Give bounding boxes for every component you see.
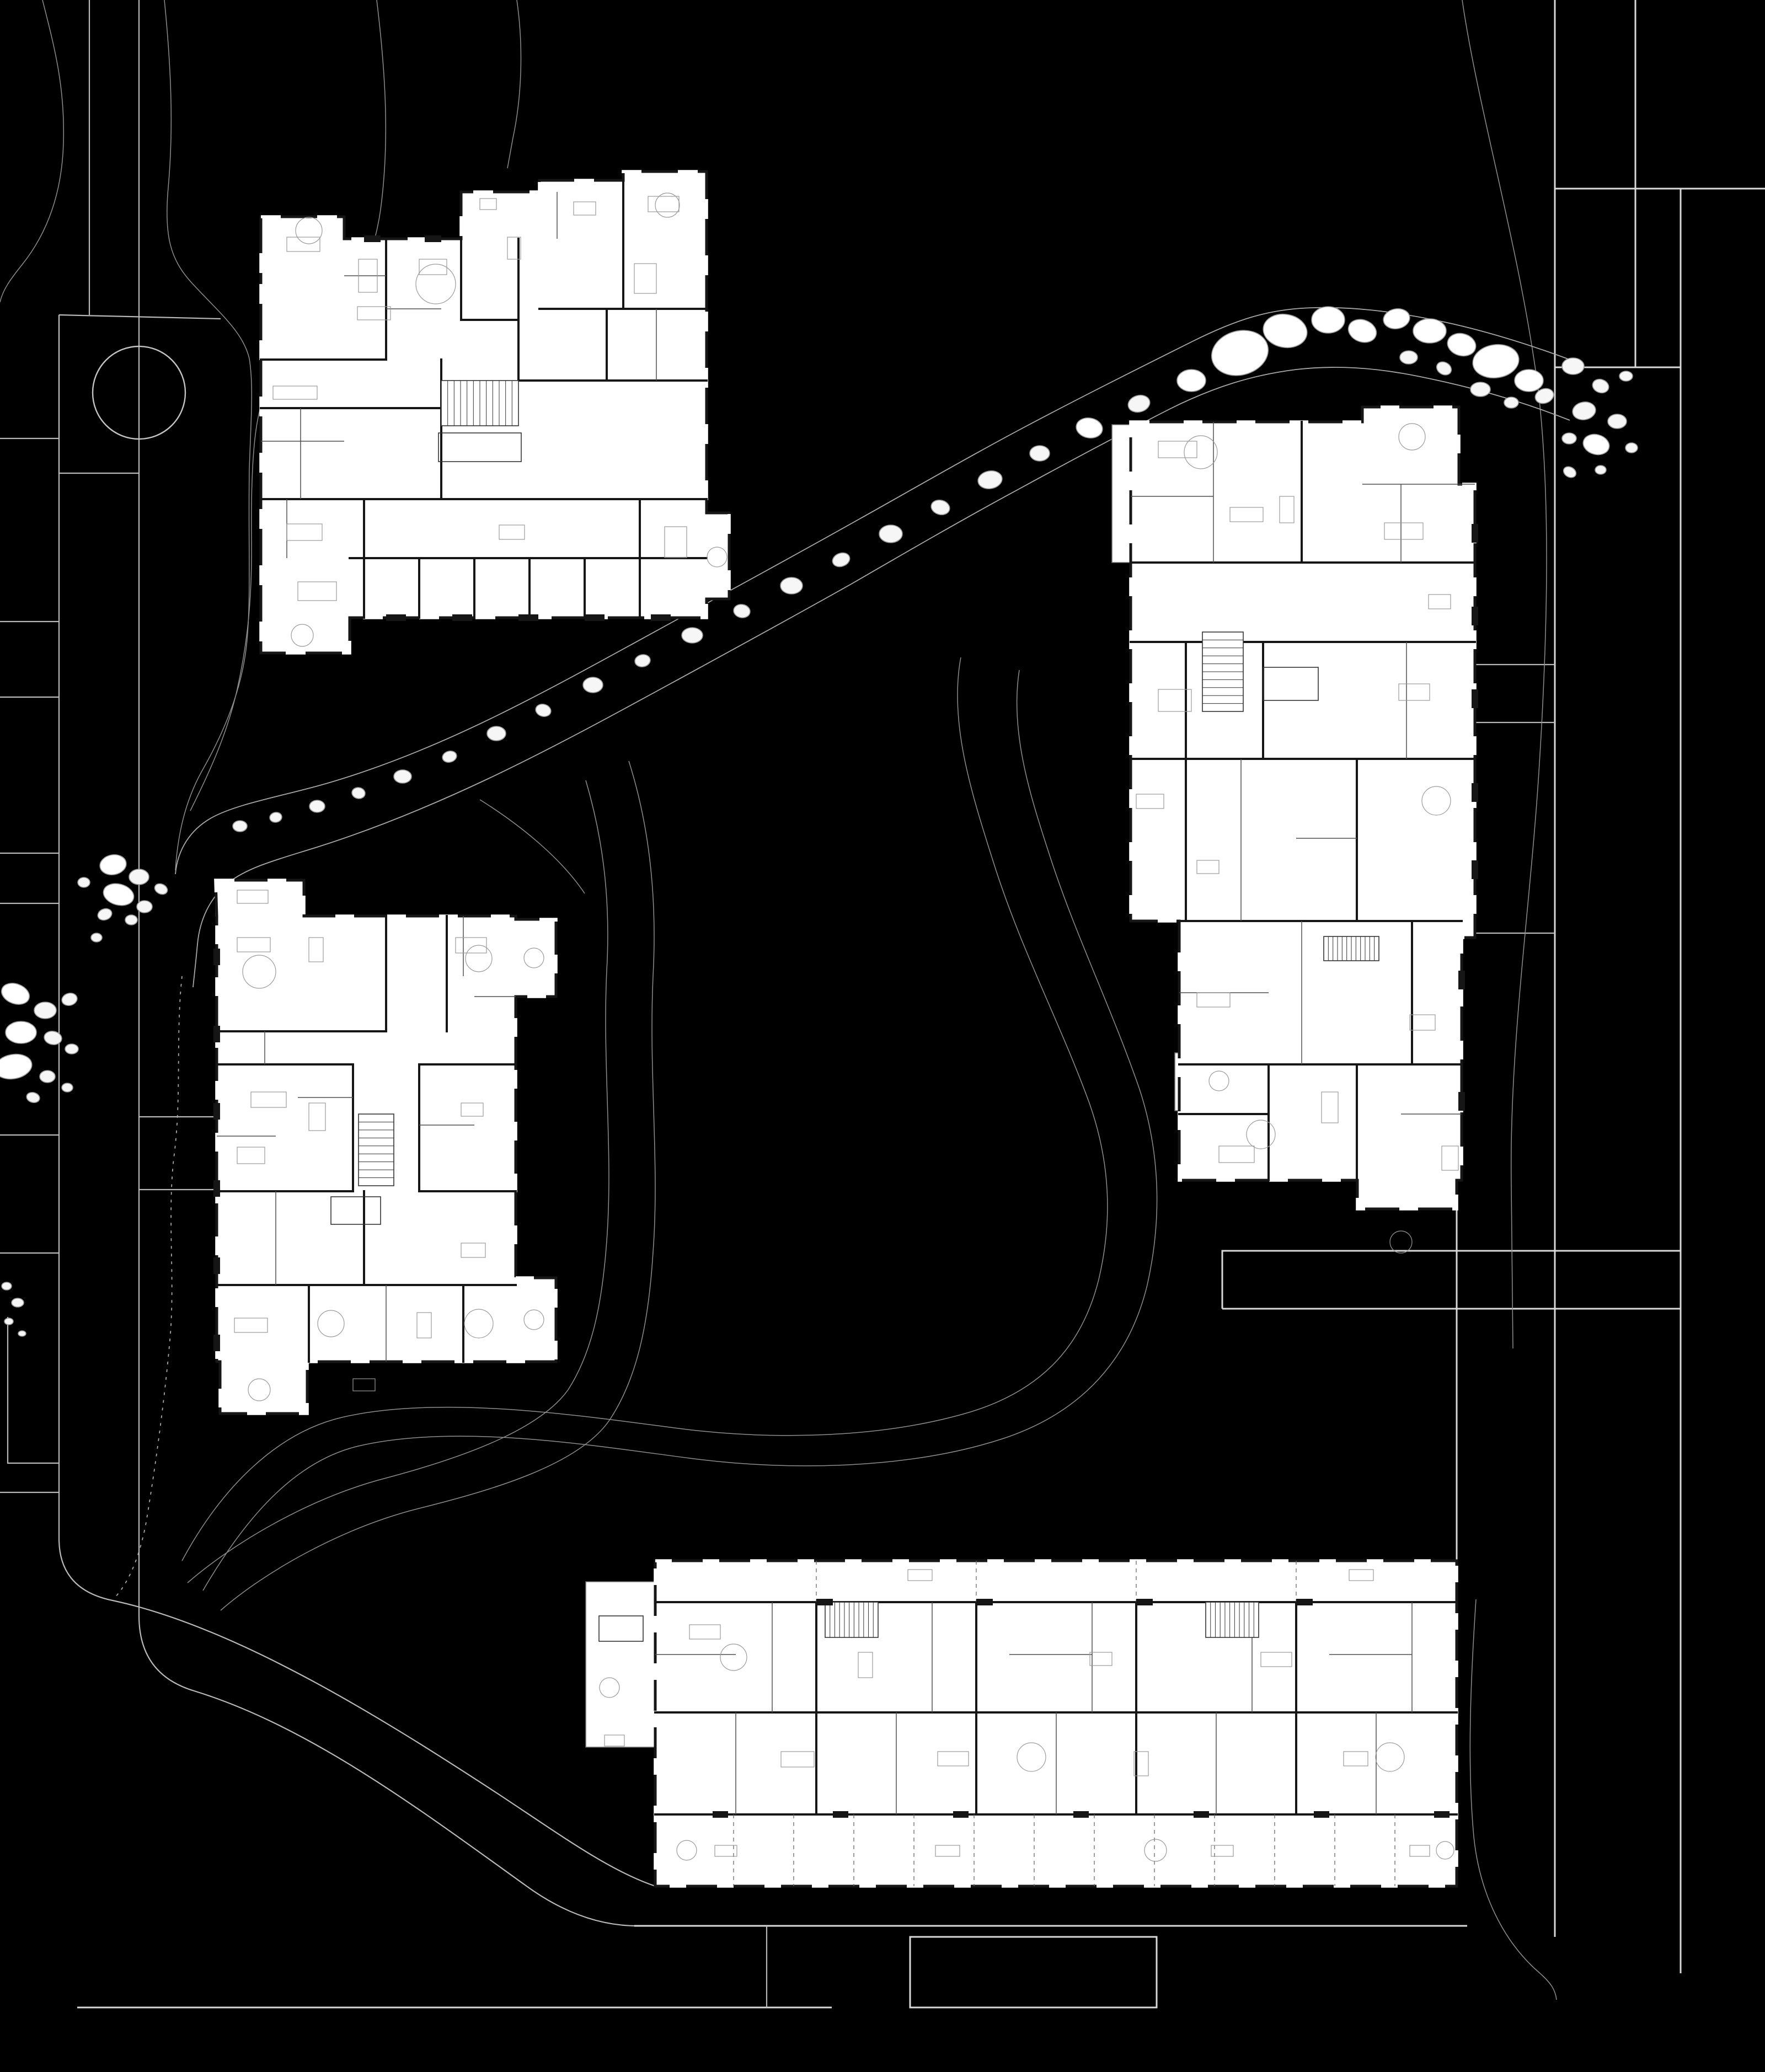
stone-21 (1625, 443, 1638, 453)
building-northwest-post-2 (518, 614, 538, 621)
building-west-stair-box-0 (359, 1114, 394, 1186)
building-south-post-1 (833, 1811, 848, 1818)
stone-55 (34, 1002, 56, 1019)
stone-67 (18, 1331, 26, 1336)
building-west-post-4 (213, 1257, 220, 1274)
stone-44 (233, 821, 247, 832)
stone-36 (583, 677, 603, 693)
stone-48 (137, 901, 152, 913)
building-east-post-5 (1458, 971, 1465, 989)
stone-46 (129, 869, 149, 885)
building-east-post-0 (1472, 524, 1478, 543)
stone-5 (1413, 319, 1446, 343)
building-northwest-stair-0 (441, 381, 518, 426)
building-west-post-1 (213, 1026, 220, 1042)
stone-18 (1608, 414, 1627, 429)
stone-64 (2, 1282, 12, 1290)
stone-30 (879, 525, 902, 543)
building-south-terrace-0 (586, 1582, 655, 1747)
building-south-post-7 (816, 1599, 833, 1605)
building-south (586, 1561, 1457, 1886)
building-south-post-3 (1073, 1811, 1089, 1818)
stone-11 (1470, 382, 1490, 397)
stone-12 (1504, 397, 1518, 408)
building-south-post-9 (1136, 1599, 1153, 1605)
building-northwest-post-0 (386, 614, 406, 621)
stone-16 (1619, 371, 1633, 381)
building-south-stair-1 (1206, 1602, 1259, 1637)
stone-34 (682, 628, 703, 643)
building-east-post-6 (1458, 1092, 1465, 1111)
building-south-post-10 (1296, 1599, 1313, 1605)
stone-9 (1400, 351, 1418, 364)
building-west-post-3 (213, 1180, 220, 1197)
stone-66 (4, 1318, 13, 1325)
building-south-stair-0 (825, 1602, 878, 1637)
building-east-terrace-1 (1112, 425, 1132, 563)
stone-32 (780, 577, 803, 594)
building-northwest-post-3 (585, 614, 605, 621)
building-south-post-8 (976, 1599, 993, 1605)
stone-27 (1030, 446, 1050, 461)
building-northwest-post-5 (364, 235, 381, 242)
site-plan (0, 0, 1765, 2072)
building-northwest-post-6 (425, 235, 441, 242)
building-east-post-3 (1472, 783, 1478, 802)
stone-61 (40, 1070, 55, 1083)
building-south-post-2 (953, 1811, 969, 1818)
building-east-stair-0 (1202, 632, 1243, 711)
stone-24 (1177, 370, 1206, 392)
building-east-post-1 (1472, 607, 1478, 625)
building-west-post-0 (213, 949, 220, 965)
stone-57 (6, 1021, 36, 1043)
stone-59 (65, 1044, 78, 1054)
building-south-post-4 (1194, 1811, 1209, 1818)
building-south-post-6 (1434, 1811, 1450, 1818)
building-south-post-0 (713, 1811, 728, 1818)
building-west-stair-0 (359, 1114, 394, 1186)
site-plan-canvas (0, 0, 1765, 2072)
building-east-post-2 (1472, 689, 1478, 708)
stone-51 (78, 877, 90, 887)
building-east-stair-1 (1324, 936, 1379, 961)
building-west-post-5 (213, 1335, 220, 1351)
stone-40 (394, 770, 411, 783)
building-west (213, 880, 556, 1414)
stone-2 (1312, 307, 1345, 333)
building-northwest-post-1 (452, 614, 472, 621)
stone-62 (62, 1083, 73, 1092)
stone-22 (1595, 465, 1606, 474)
building-west-post-2 (213, 1103, 220, 1120)
building-south-stair-box-1 (1206, 1602, 1259, 1637)
building-south-stair-box-0 (825, 1602, 878, 1637)
stone-38 (487, 726, 506, 741)
building-northwest (261, 172, 729, 653)
building-east-post-4 (1472, 860, 1478, 879)
stone-53 (91, 933, 102, 942)
building-northwest-post-4 (651, 614, 671, 621)
building-south-post-5 (1314, 1811, 1329, 1818)
stone-14 (1562, 358, 1584, 374)
stone-42 (309, 800, 325, 812)
stone-20 (1562, 433, 1576, 444)
stone-65 (12, 1298, 24, 1307)
stone-50 (125, 915, 137, 925)
stone-8 (1515, 370, 1543, 392)
